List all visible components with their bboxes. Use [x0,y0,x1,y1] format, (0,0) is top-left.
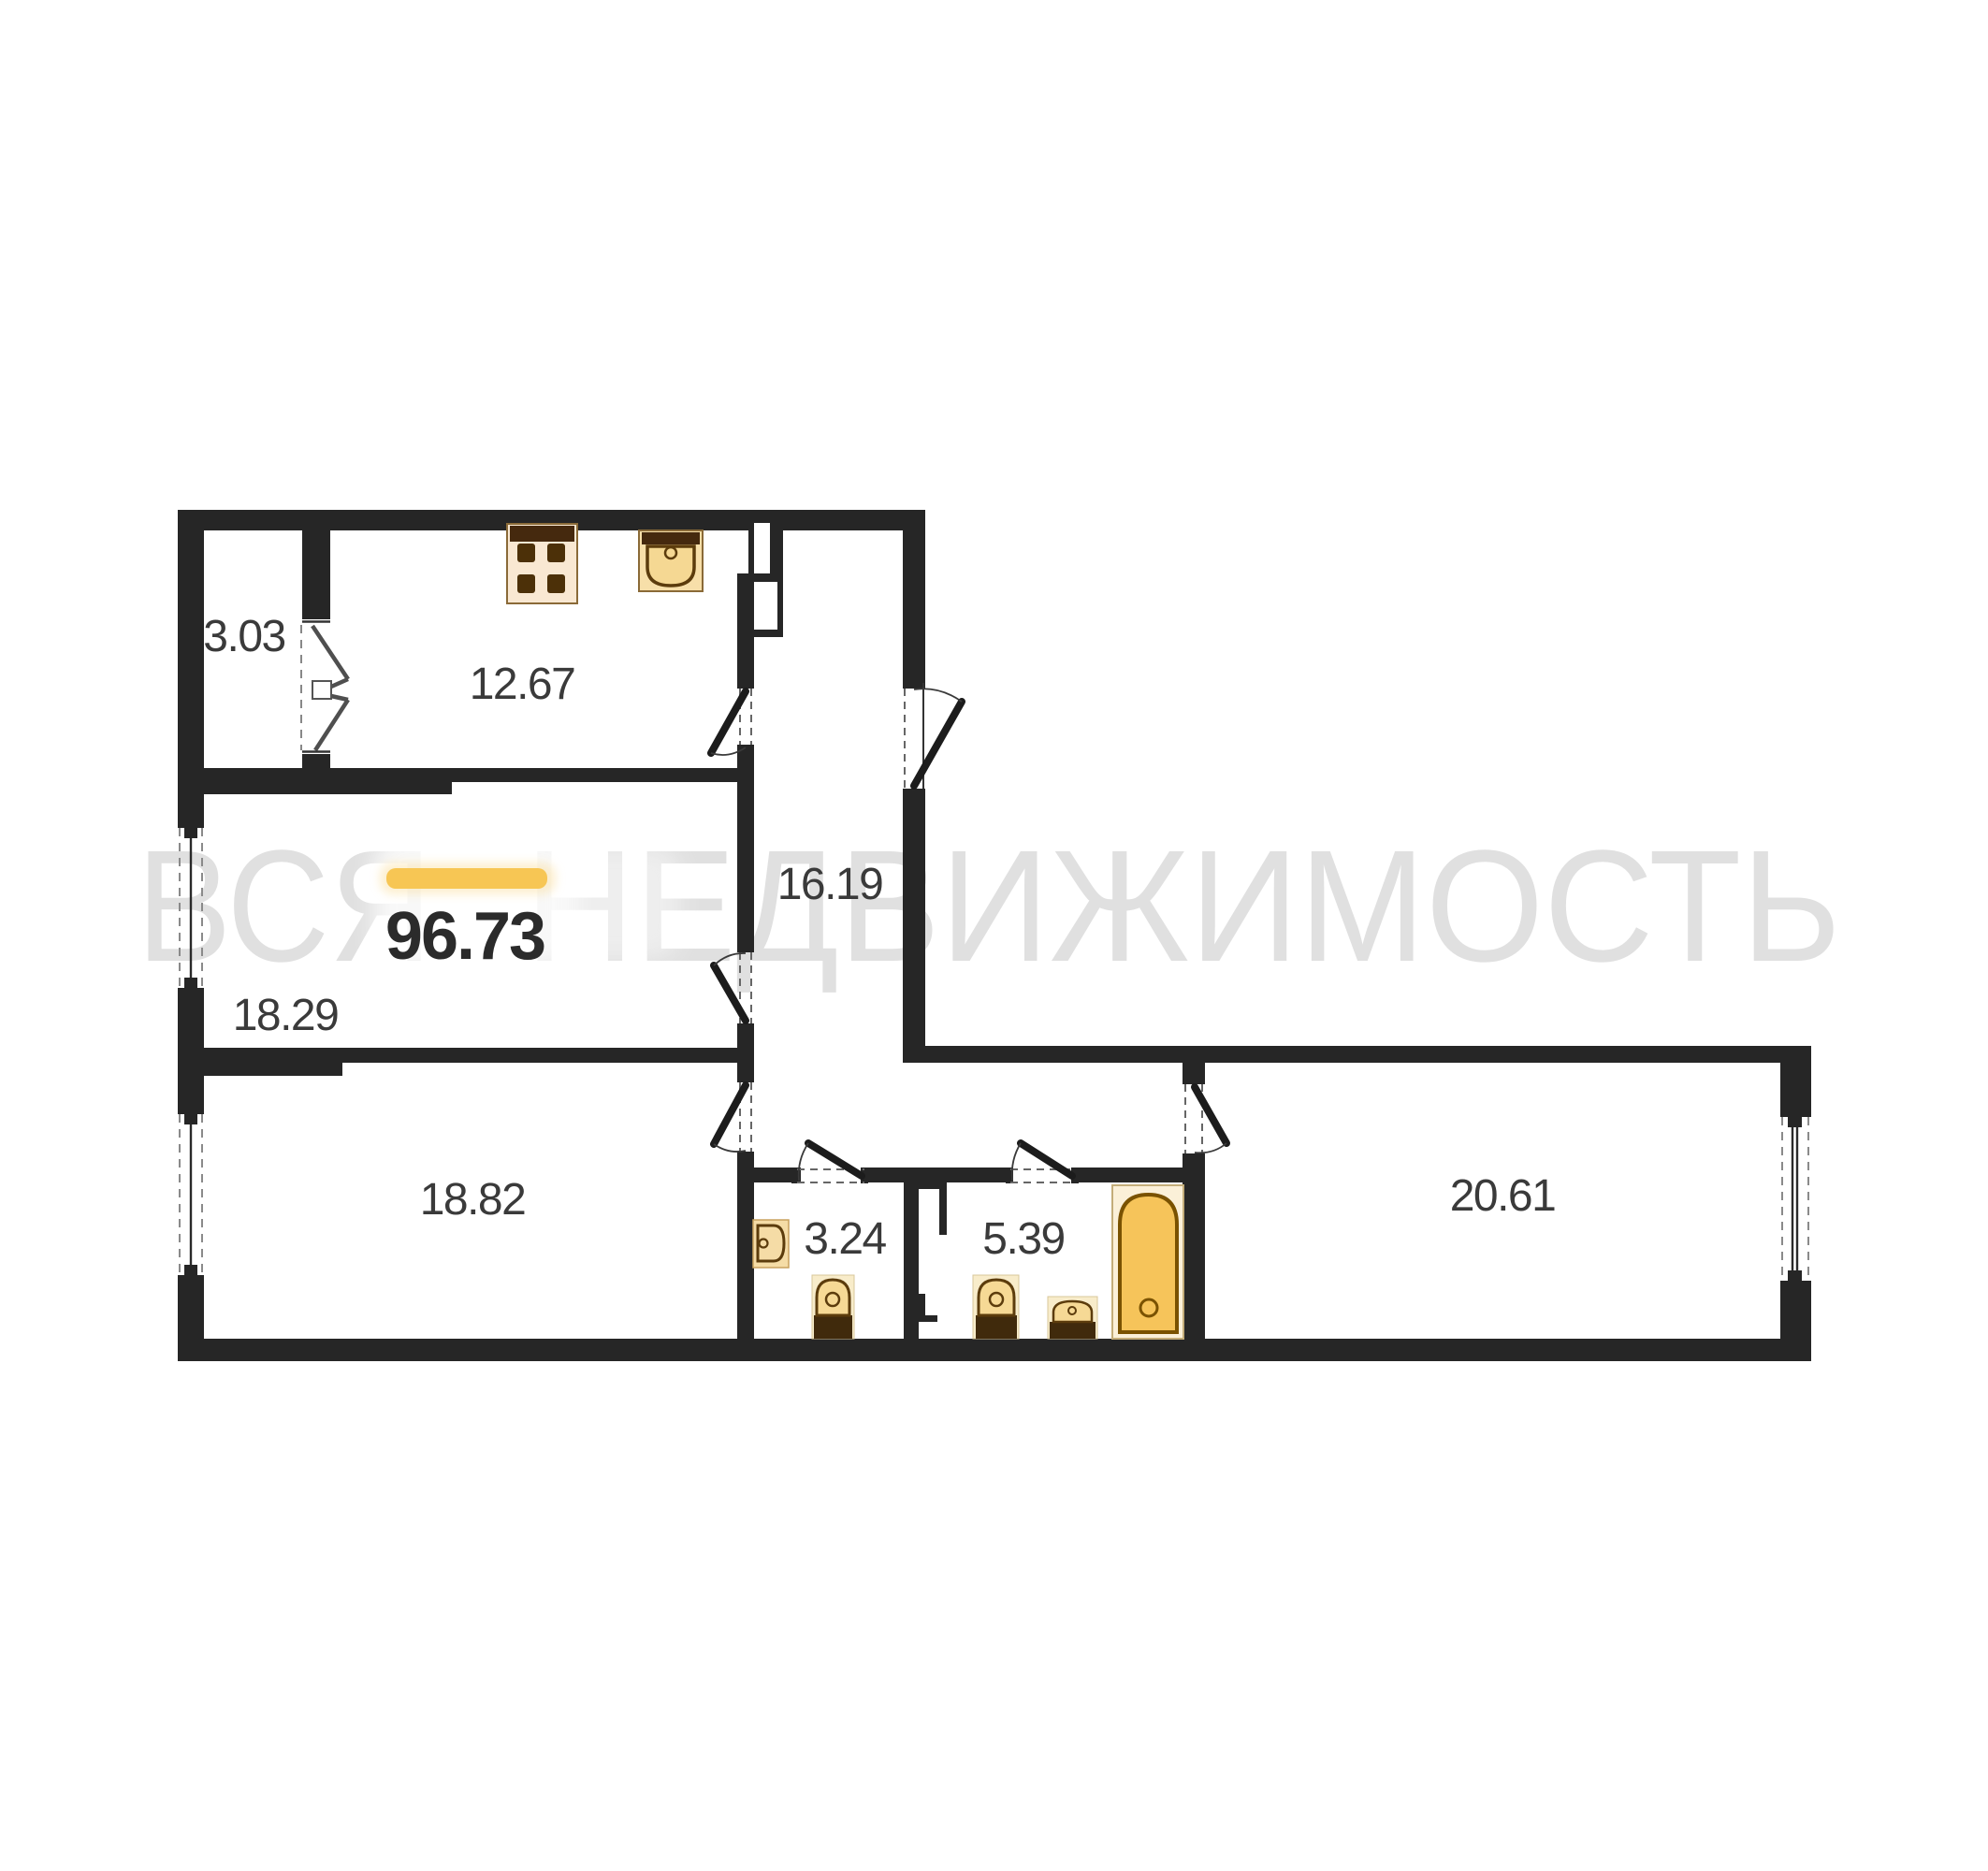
svg-text:20.61: 20.61 [1450,1171,1556,1221]
svg-text:3.24: 3.24 [804,1214,886,1264]
svg-text:12.67: 12.67 [470,660,575,709]
svg-text:96.73: 96.73 [385,899,544,974]
svg-text:18.82: 18.82 [420,1175,526,1225]
svg-text:16.19: 16.19 [777,860,883,909]
svg-text:18.29: 18.29 [233,991,339,1040]
svg-text:НЕДВИЖИМОСТЬ: НЕДВИЖИМОСТЬ [525,818,1841,995]
svg-text:5.39: 5.39 [982,1214,1064,1264]
svg-text:3.03: 3.03 [203,612,284,661]
